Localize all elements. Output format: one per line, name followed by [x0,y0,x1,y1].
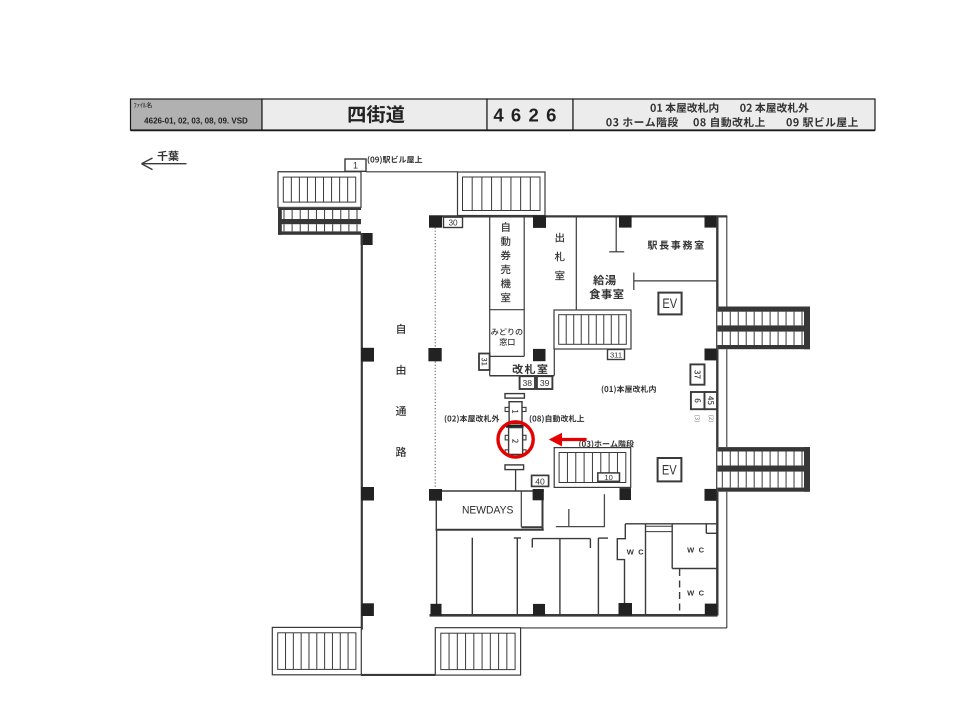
svg-text:40: 40 [535,476,545,486]
svg-text:W C: W C [627,547,645,556]
svg-text:EV: EV [662,295,677,311]
svg-text:30: 30 [448,219,458,228]
svg-text:10: 10 [604,473,612,482]
svg-text:NEWDAYS: NEWDAYS [462,504,514,516]
svg-text:W C: W C [687,588,705,597]
svg-text:4626-01, 02, 03, 08, 09. VSD: 4626-01, 02, 03, 08, 09. VSD [144,117,248,126]
svg-text:EV: EV [662,462,677,478]
svg-text:39: 39 [540,378,550,388]
svg-text:1: 1 [353,161,358,171]
svg-text:4626: 4626 [493,104,563,125]
svg-text:W C: W C [687,546,705,555]
svg-text:311: 311 [610,351,622,360]
svg-text:38: 38 [523,378,533,388]
